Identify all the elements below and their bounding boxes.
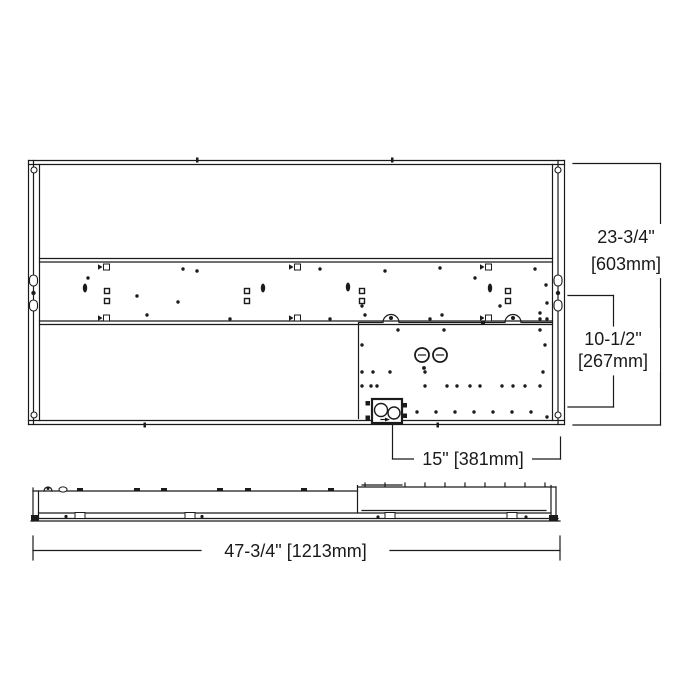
- screw-knockout-icons: [415, 348, 447, 370]
- bottom-notches: [31, 513, 558, 522]
- knockout-arrow-markers-bottom: [98, 315, 492, 321]
- junction-knockout-hole: [388, 407, 400, 419]
- dimension-value-imperial: 10-1/2": [566, 328, 660, 350]
- junction-knockout-hole: [375, 404, 388, 417]
- square-holes: [105, 289, 511, 304]
- dimension-label-fixture-length: 47-3/4" [1213mm]: [203, 540, 388, 563]
- left-end-plate: [29, 161, 40, 425]
- center-gear-tray: [40, 259, 553, 325]
- rivet-dots-band: [86, 266, 541, 320]
- dimension-value-metric: [603mm]: [580, 251, 672, 278]
- technical-drawing-canvas: 23-3/4" [603mm] 10-1/2" [267mm] 15" [381…: [0, 0, 700, 700]
- dimension-value-metric: [267mm]: [566, 350, 660, 372]
- junction-box: [366, 399, 408, 423]
- dimension-label-fixture-height: 23-3/4" [603mm]: [580, 224, 672, 278]
- dimension-value: 15" [381mm]: [414, 448, 532, 471]
- dimension-label-junction-offset: 15" [381mm]: [414, 448, 532, 471]
- right-end-plate: [544, 161, 564, 425]
- slot-holes: [83, 283, 492, 293]
- dimension-line-fixture-height: [573, 164, 661, 426]
- dimension-label-driver-height: 10-1/2" [267mm]: [566, 328, 660, 372]
- top-view: [29, 158, 565, 428]
- dimension-value: 47-3/4" [1213mm]: [203, 540, 388, 563]
- side-view: [31, 483, 560, 521]
- dimension-value-imperial: 23-3/4": [580, 224, 672, 251]
- driver-compartment-plate: [359, 315, 553, 424]
- knockout-arrow-markers-top: [98, 264, 492, 270]
